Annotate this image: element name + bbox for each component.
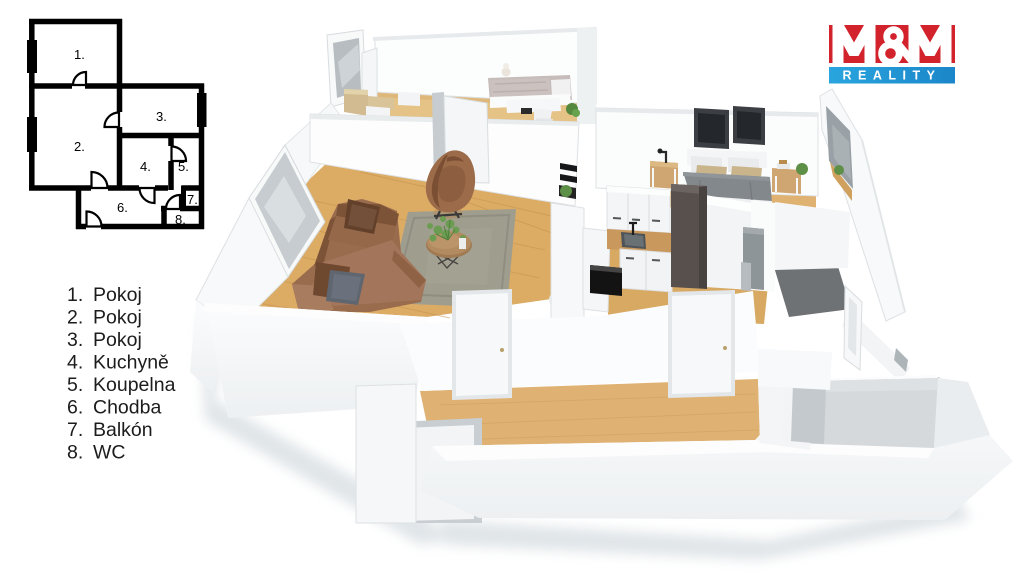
svg-text:4.: 4. [67, 352, 83, 374]
svg-text:3.: 3. [156, 109, 167, 124]
svg-text:2.: 2. [67, 307, 83, 329]
svg-text:3.: 3. [67, 329, 83, 351]
svg-text:Koupelna: Koupelna [93, 374, 176, 396]
svg-text:2.: 2. [74, 139, 85, 154]
svg-text:4.: 4. [140, 159, 151, 174]
svg-text:7.: 7. [187, 192, 198, 207]
svg-text:5.: 5. [67, 374, 83, 396]
svg-text:Chodba: Chodba [93, 397, 161, 419]
svg-text:Pokoj: Pokoj [93, 307, 142, 329]
svg-text:6.: 6. [117, 200, 128, 215]
svg-text:8.: 8. [175, 212, 186, 227]
svg-text:Kuchyně: Kuchyně [93, 352, 169, 374]
svg-text:7.: 7. [67, 419, 83, 441]
svg-text:WC: WC [93, 442, 126, 464]
svg-text:5.: 5. [178, 159, 189, 174]
svg-text:6.: 6. [67, 397, 83, 419]
svg-text:REALITY: REALITY [843, 69, 942, 83]
svg-text:Pokoj: Pokoj [93, 284, 142, 306]
svg-text:8.: 8. [67, 442, 83, 464]
svg-text:Balkón: Balkón [93, 419, 153, 441]
svg-text:1.: 1. [67, 284, 83, 306]
svg-text:Pokoj: Pokoj [93, 329, 142, 351]
svg-text:1.: 1. [74, 47, 85, 62]
